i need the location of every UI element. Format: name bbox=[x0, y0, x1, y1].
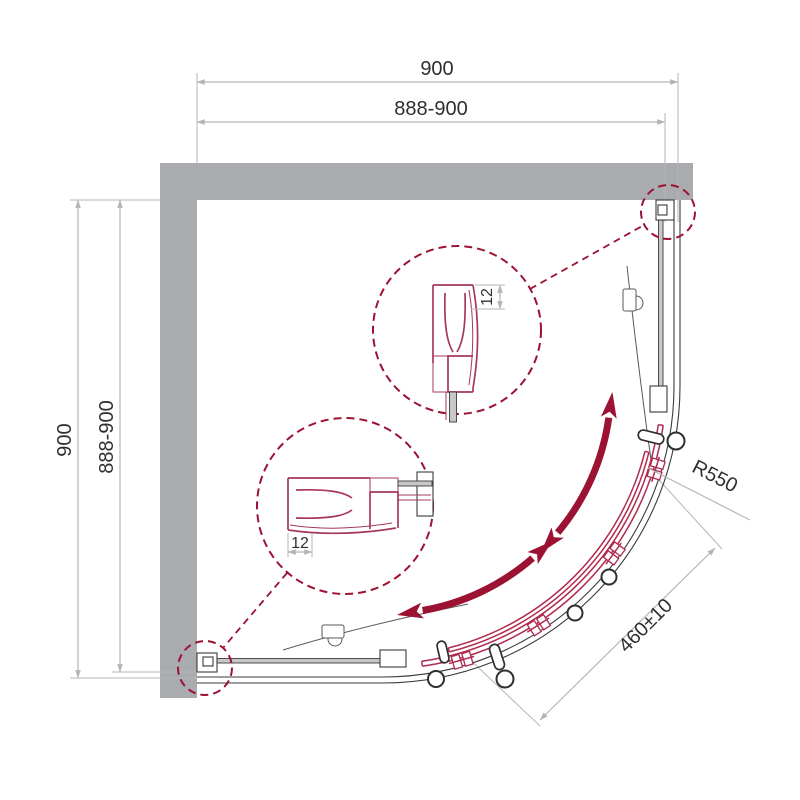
wall-left bbox=[160, 200, 197, 698]
detail-callouts: 12 12 bbox=[178, 185, 695, 695]
dim-top-overall: 900 bbox=[420, 58, 453, 80]
detail-top-dim: 12 bbox=[479, 288, 496, 306]
door-roller-4 bbox=[447, 651, 476, 671]
slide-arrow-upper bbox=[558, 418, 609, 533]
door-roller-1 bbox=[646, 455, 666, 484]
dim-side-range: 888-900 bbox=[96, 400, 118, 473]
guide-clamp-bottom bbox=[322, 625, 344, 646]
panel-connector-right bbox=[650, 386, 667, 412]
detail-circle-top bbox=[373, 246, 541, 414]
detail-bottom-dim: 12 bbox=[291, 535, 309, 552]
fixed-glass-bottom bbox=[216, 659, 384, 664]
walls bbox=[160, 163, 693, 698]
radius-opening-dims: 460±10 R550 bbox=[540, 456, 750, 720]
dim-radius: R550 bbox=[688, 456, 741, 497]
door-handle-top bbox=[637, 429, 684, 449]
door-knob-bottom-2 bbox=[428, 671, 444, 687]
door-knob-mid-1 bbox=[568, 606, 583, 621]
dim-top-range: 888-900 bbox=[394, 98, 467, 120]
guide-clamp-top bbox=[623, 289, 643, 311]
wall-top bbox=[160, 163, 693, 200]
door-knob-bottom bbox=[497, 671, 514, 688]
dim-side-overall: 900 bbox=[54, 423, 76, 456]
detail-leader-bottom bbox=[223, 573, 287, 648]
dim-opening: 460±10 bbox=[614, 594, 677, 657]
fixed-glass-right bbox=[659, 218, 664, 388]
panel-connector-bottom bbox=[380, 650, 406, 667]
detail-circle-bottom bbox=[257, 418, 433, 594]
door-arc-outer-1 bbox=[422, 425, 659, 662]
detail-leader-top bbox=[530, 225, 644, 289]
sliding-doors bbox=[422, 425, 685, 688]
wall-profile-bottom bbox=[197, 653, 217, 672]
technical-drawing: 900 888-900 900 888-900 bbox=[0, 0, 800, 800]
door-knob-mid-2 bbox=[602, 570, 617, 585]
wall-profile-top bbox=[656, 200, 674, 220]
drawing-canvas: 900 888-900 900 888-900 bbox=[0, 0, 800, 800]
door-knob-top bbox=[668, 433, 685, 450]
slide-arrow-lower bbox=[423, 558, 533, 610]
